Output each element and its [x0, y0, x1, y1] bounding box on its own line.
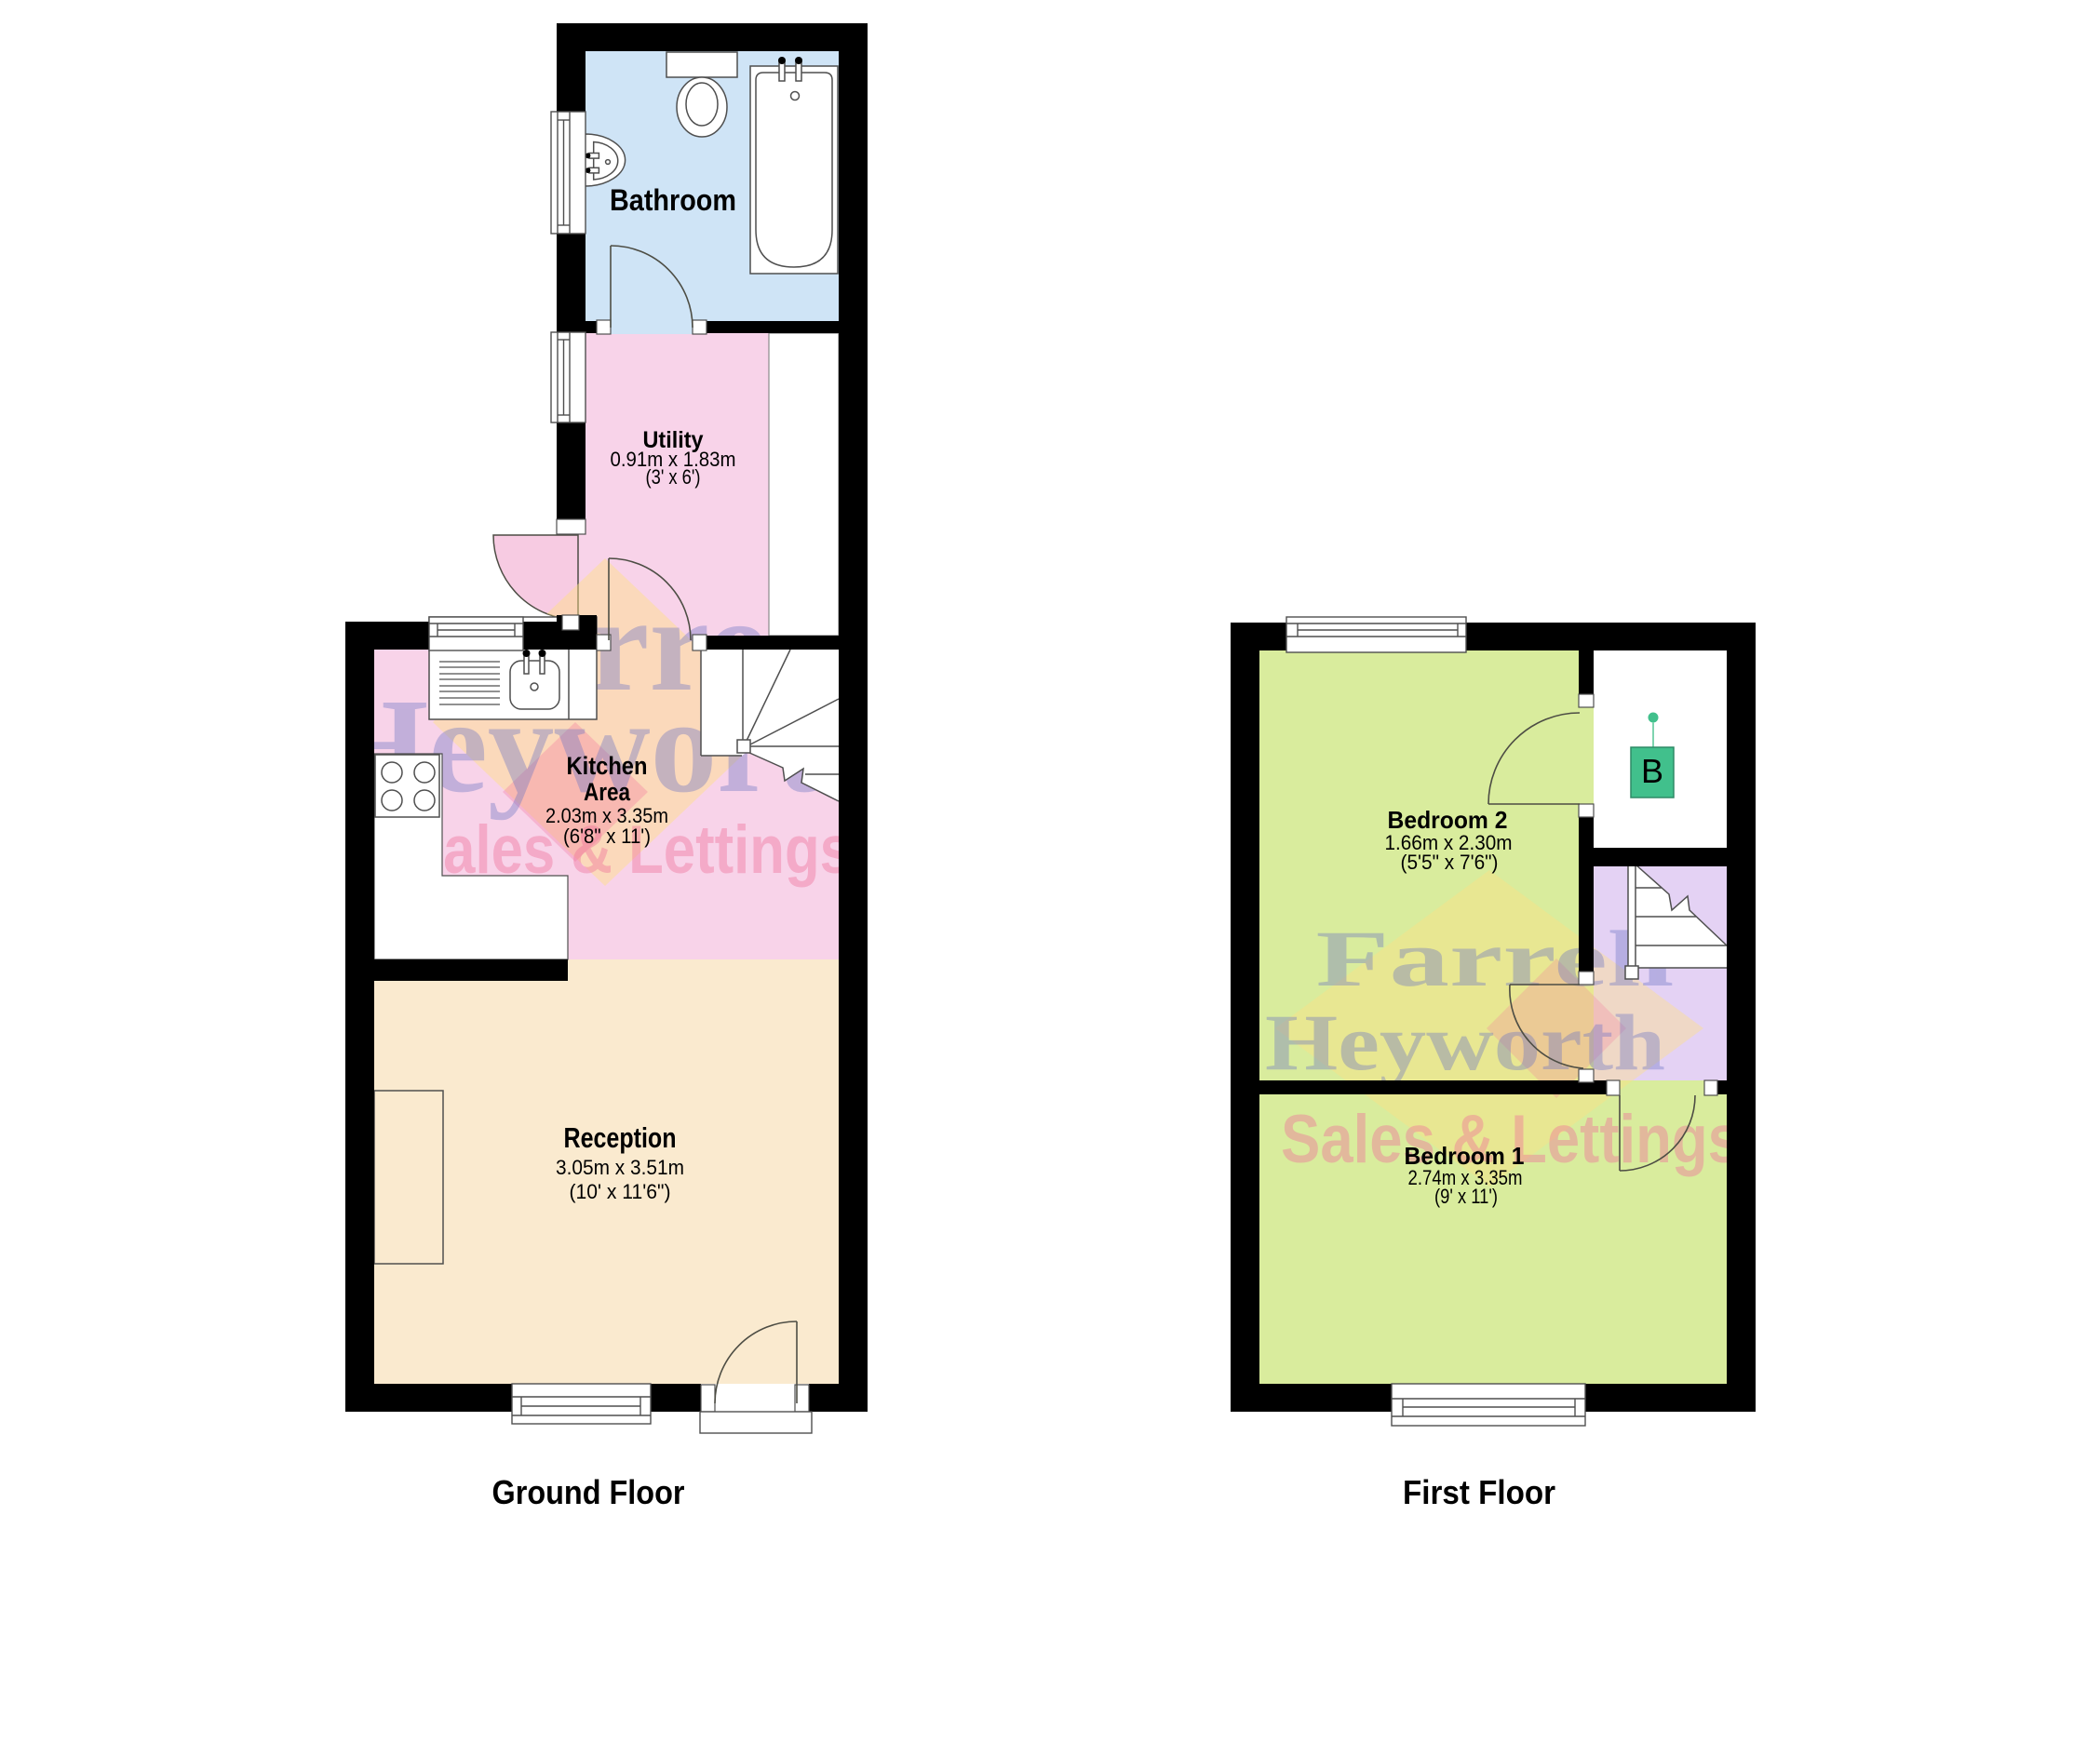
svg-text:Kitchen: Kitchen: [567, 752, 648, 780]
svg-text:(6'8" x 11'): (6'8" x 11'): [563, 825, 651, 848]
svg-text:Reception: Reception: [564, 1121, 677, 1154]
svg-text:First Floor: First Floor: [1403, 1473, 1555, 1511]
svg-text:Farrell: Farrell: [1316, 914, 1675, 1003]
svg-text:(3' x 6'): (3' x 6'): [646, 465, 701, 489]
svg-text:B: B: [1641, 752, 1663, 790]
svg-text:(10' x 11'6"): (10' x 11'6"): [570, 1180, 671, 1203]
svg-text:3.05m x 3.51m: 3.05m x 3.51m: [556, 1156, 684, 1179]
svg-text:Bedroom 2: Bedroom 2: [1388, 806, 1508, 834]
svg-text:Heyworth: Heyworth: [1265, 998, 1665, 1087]
svg-text:Bathroom: Bathroom: [610, 183, 736, 217]
svg-text:Area: Area: [584, 778, 631, 806]
svg-text:(9' x 11'): (9' x 11'): [1434, 1185, 1498, 1208]
svg-text:(5'5" x 7'6"): (5'5" x 7'6"): [1401, 851, 1499, 874]
svg-text:Ground Floor: Ground Floor: [492, 1473, 685, 1511]
